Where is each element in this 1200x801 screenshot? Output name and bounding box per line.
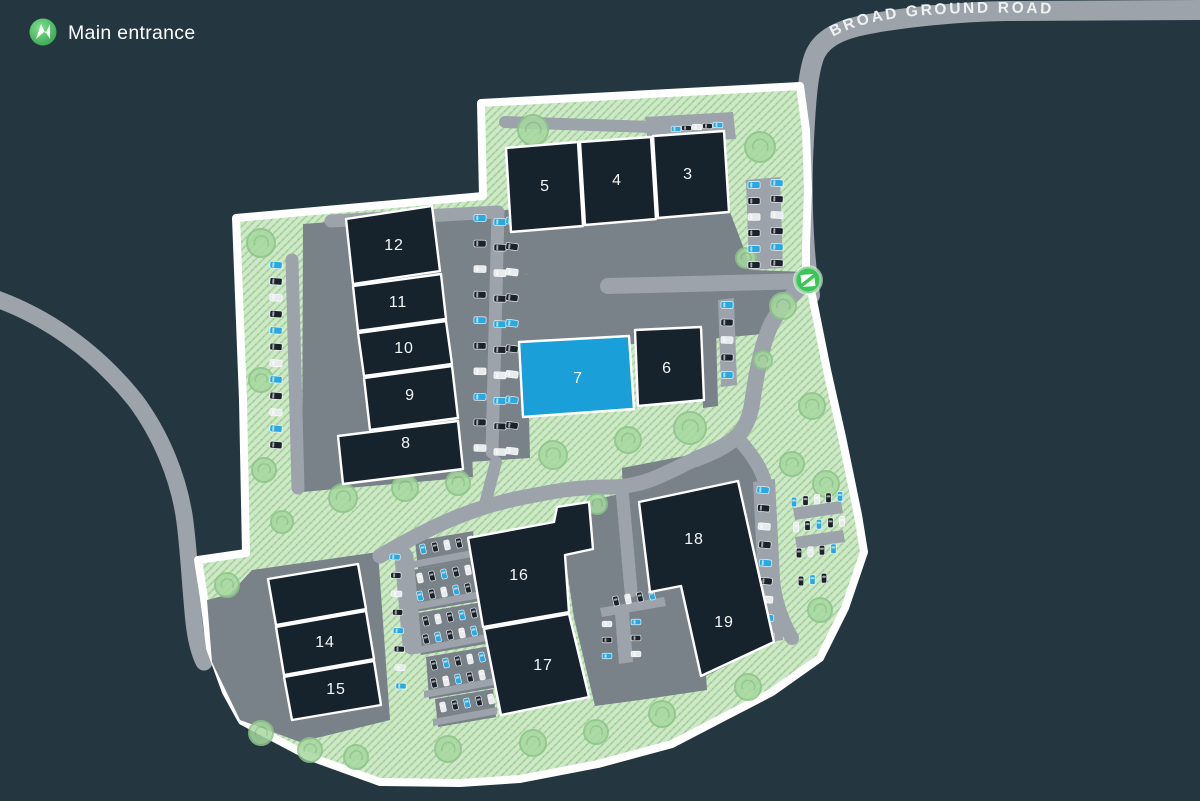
svg-text:9: 9: [405, 387, 415, 404]
svg-text:Main entrance: Main entrance: [68, 22, 195, 44]
svg-text:3: 3: [683, 166, 693, 183]
svg-text:15: 15: [326, 681, 345, 698]
svg-text:17: 17: [533, 657, 552, 674]
svg-text:18: 18: [684, 531, 703, 548]
svg-text:4: 4: [612, 172, 622, 189]
svg-text:11: 11: [389, 294, 407, 311]
svg-text:10: 10: [394, 340, 413, 357]
svg-text:6: 6: [662, 360, 672, 377]
svg-text:16: 16: [509, 567, 528, 584]
svg-text:12: 12: [384, 237, 403, 254]
svg-text:7: 7: [573, 370, 583, 387]
svg-text:8: 8: [401, 435, 411, 452]
svg-text:19: 19: [714, 614, 733, 631]
svg-text:5: 5: [540, 178, 550, 195]
svg-text:14: 14: [315, 634, 334, 651]
